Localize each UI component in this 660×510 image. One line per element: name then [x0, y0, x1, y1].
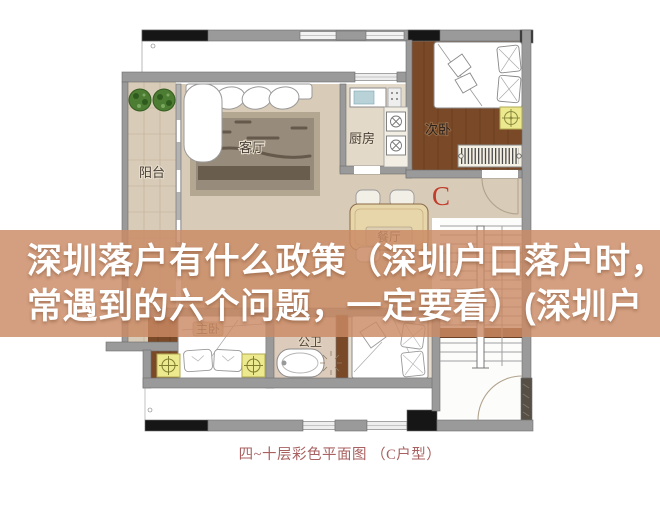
sofa-chaise	[184, 84, 222, 162]
unit-mark: C	[432, 181, 450, 211]
bottom-wall-gray-2	[335, 420, 367, 431]
pillow	[497, 75, 521, 103]
article-title-line2: 常遇到的六个问题，一定要看）(深圳户	[27, 284, 660, 329]
bottom-wall-gray-1	[208, 420, 303, 431]
kitchen-label: 厨房	[349, 131, 375, 146]
article-title-line1: 深圳落户有什么政策（深圳户口落户时，	[27, 239, 660, 284]
radiator	[458, 145, 522, 167]
wall-detail-dot-2	[148, 408, 152, 412]
secondary-bedroom-label: 次卧	[425, 122, 451, 137]
bottom-wall-gray-3	[437, 420, 533, 431]
living-room-label: 客厅	[239, 140, 265, 155]
ac-floor-unit	[242, 354, 265, 377]
bedrooms-bottom-wall	[143, 378, 433, 388]
top-wall-black-right	[408, 30, 440, 41]
bottom-wall-black-block	[407, 410, 437, 431]
bathroom-label: 公卫	[298, 335, 322, 349]
pillow	[183, 349, 212, 372]
article-hero-image: 阳台 客厅	[0, 0, 660, 510]
ac-floor-unit	[500, 107, 522, 129]
kitchen-left-wall	[340, 84, 346, 172]
bottom-wall-black	[145, 420, 208, 431]
bathtub-faucet	[282, 361, 287, 366]
floorplan-caption: 四~十层彩色平面图 （C户型）	[239, 446, 442, 463]
vent-panel	[388, 88, 401, 107]
lower-left-wall-h	[106, 342, 178, 351]
balcony-label: 阳台	[139, 165, 165, 180]
top-wall-black-left	[142, 30, 208, 41]
wall-detail-dot	[151, 44, 155, 48]
secondary-bedroom-door-gap	[482, 170, 518, 178]
plant-1	[129, 89, 151, 111]
article-title-band: 深圳落户有什么政策（深圳户口落户时， 常遇到的六个问题，一定要看）(深圳户	[0, 230, 660, 337]
plant-2	[153, 89, 175, 111]
kitchen-door-gap	[354, 166, 380, 174]
pillow	[213, 349, 242, 371]
stove-burner-2	[387, 136, 406, 155]
balcony-slider-gaps	[177, 120, 181, 242]
inner-top-wall	[122, 72, 355, 82]
microwave-screen	[354, 91, 374, 104]
right-wall-hatched-block	[521, 378, 532, 420]
ac-floor-unit	[157, 354, 180, 377]
stove-burner-1	[387, 112, 406, 131]
top-wall-tab	[336, 31, 366, 40]
pillow	[497, 45, 522, 73]
pillow	[401, 351, 425, 377]
rug-streak-band	[198, 166, 310, 180]
